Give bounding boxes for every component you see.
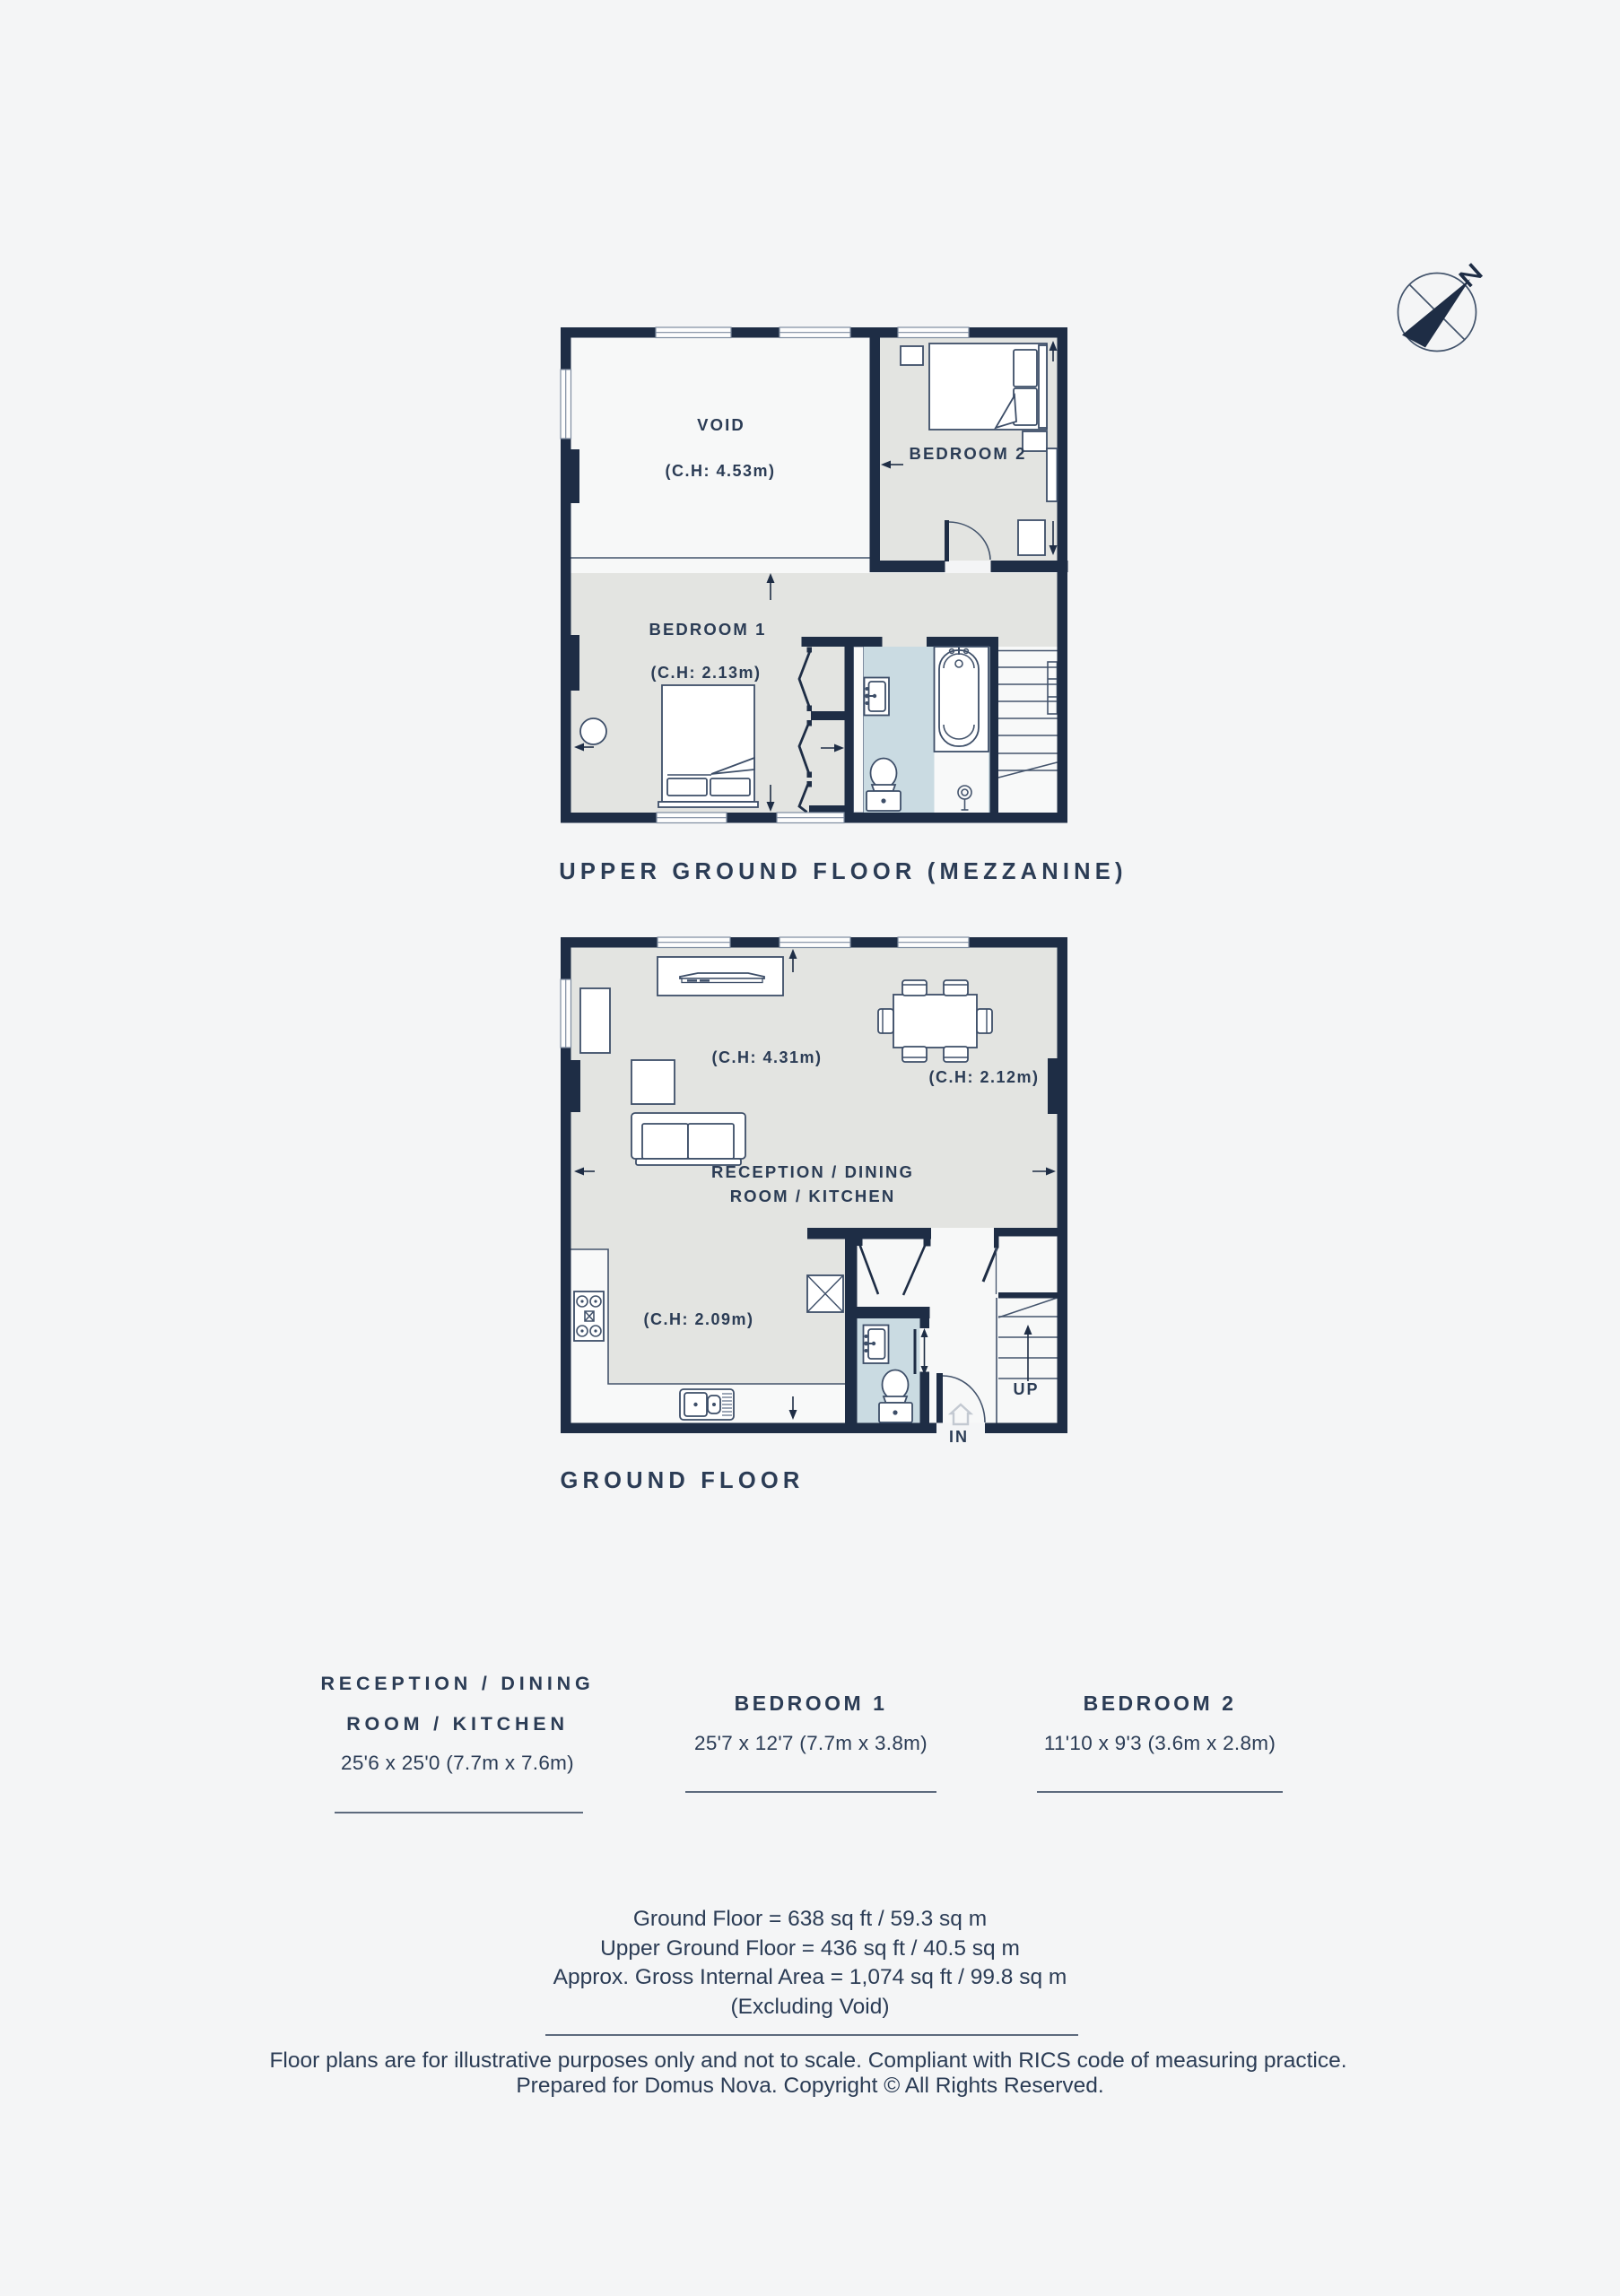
svg-text:UPPER GROUND FLOOR (MEZZANINE): UPPER GROUND FLOOR (MEZZANINE) [559, 859, 1127, 884]
svg-text:(Excluding Void): (Excluding Void) [730, 1995, 889, 2019]
svg-text:(C.H: 4.31m): (C.H: 4.31m) [711, 1048, 822, 1066]
svg-text:BEDROOM 1: BEDROOM 1 [735, 1692, 888, 1715]
svg-text:Prepared for Domus Nova. Copyr: Prepared for Domus Nova. Copyright © All… [516, 2074, 1103, 2098]
svg-text:25'6 x 25'0 (7.7m x 7.6m): 25'6 x 25'0 (7.7m x 7.6m) [341, 1752, 574, 1774]
svg-text:BEDROOM 1: BEDROOM 1 [649, 620, 767, 639]
svg-text:Approx. Gross Internal Area =: Approx. Gross Internal Area = 1,074 sq f… [553, 1965, 1067, 1989]
svg-text:(C.H: 2.12m): (C.H: 2.12m) [928, 1068, 1039, 1086]
svg-text:IN: IN [949, 1428, 969, 1446]
svg-text:Floor plans are for illustrati: Floor plans are for illustrative purpose… [269, 2048, 1346, 2073]
svg-text:BEDROOM 2: BEDROOM 2 [1084, 1692, 1237, 1715]
svg-text:Ground Floor = 638 sq ft / 59.: Ground Floor = 638 sq ft / 59.3 sq m [633, 1907, 987, 1931]
svg-text:11'10 x 9'3 (3.6m x 2.8m): 11'10 x 9'3 (3.6m x 2.8m) [1044, 1732, 1276, 1754]
svg-text:25'7 x 12'7 (7.7m x 3.8m): 25'7 x 12'7 (7.7m x 3.8m) [694, 1732, 928, 1754]
svg-text:RECEPTION / DINING: RECEPTION / DINING [711, 1162, 914, 1181]
svg-text:ROOM / KITCHEN: ROOM / KITCHEN [730, 1187, 896, 1205]
svg-text:(C.H: 2.09m): (C.H: 2.09m) [643, 1310, 753, 1328]
svg-text:VOID: VOID [697, 415, 745, 434]
svg-text:UP: UP [1013, 1380, 1039, 1398]
svg-text:RECEPTION / DINING: RECEPTION / DINING [320, 1673, 594, 1694]
svg-text:GROUND FLOOR: GROUND FLOOR [560, 1468, 804, 1493]
svg-text:(C.H: 4.53m): (C.H: 4.53m) [665, 462, 775, 480]
svg-text:BEDROOM 2: BEDROOM 2 [910, 444, 1027, 463]
svg-text:(C.H: 2.13m): (C.H: 2.13m) [650, 664, 761, 682]
svg-text:Upper Ground Floor = 436 sq ft: Upper Ground Floor = 436 sq ft / 40.5 sq… [600, 1936, 1020, 1961]
svg-text:ROOM / KITCHEN: ROOM / KITCHEN [346, 1713, 569, 1735]
